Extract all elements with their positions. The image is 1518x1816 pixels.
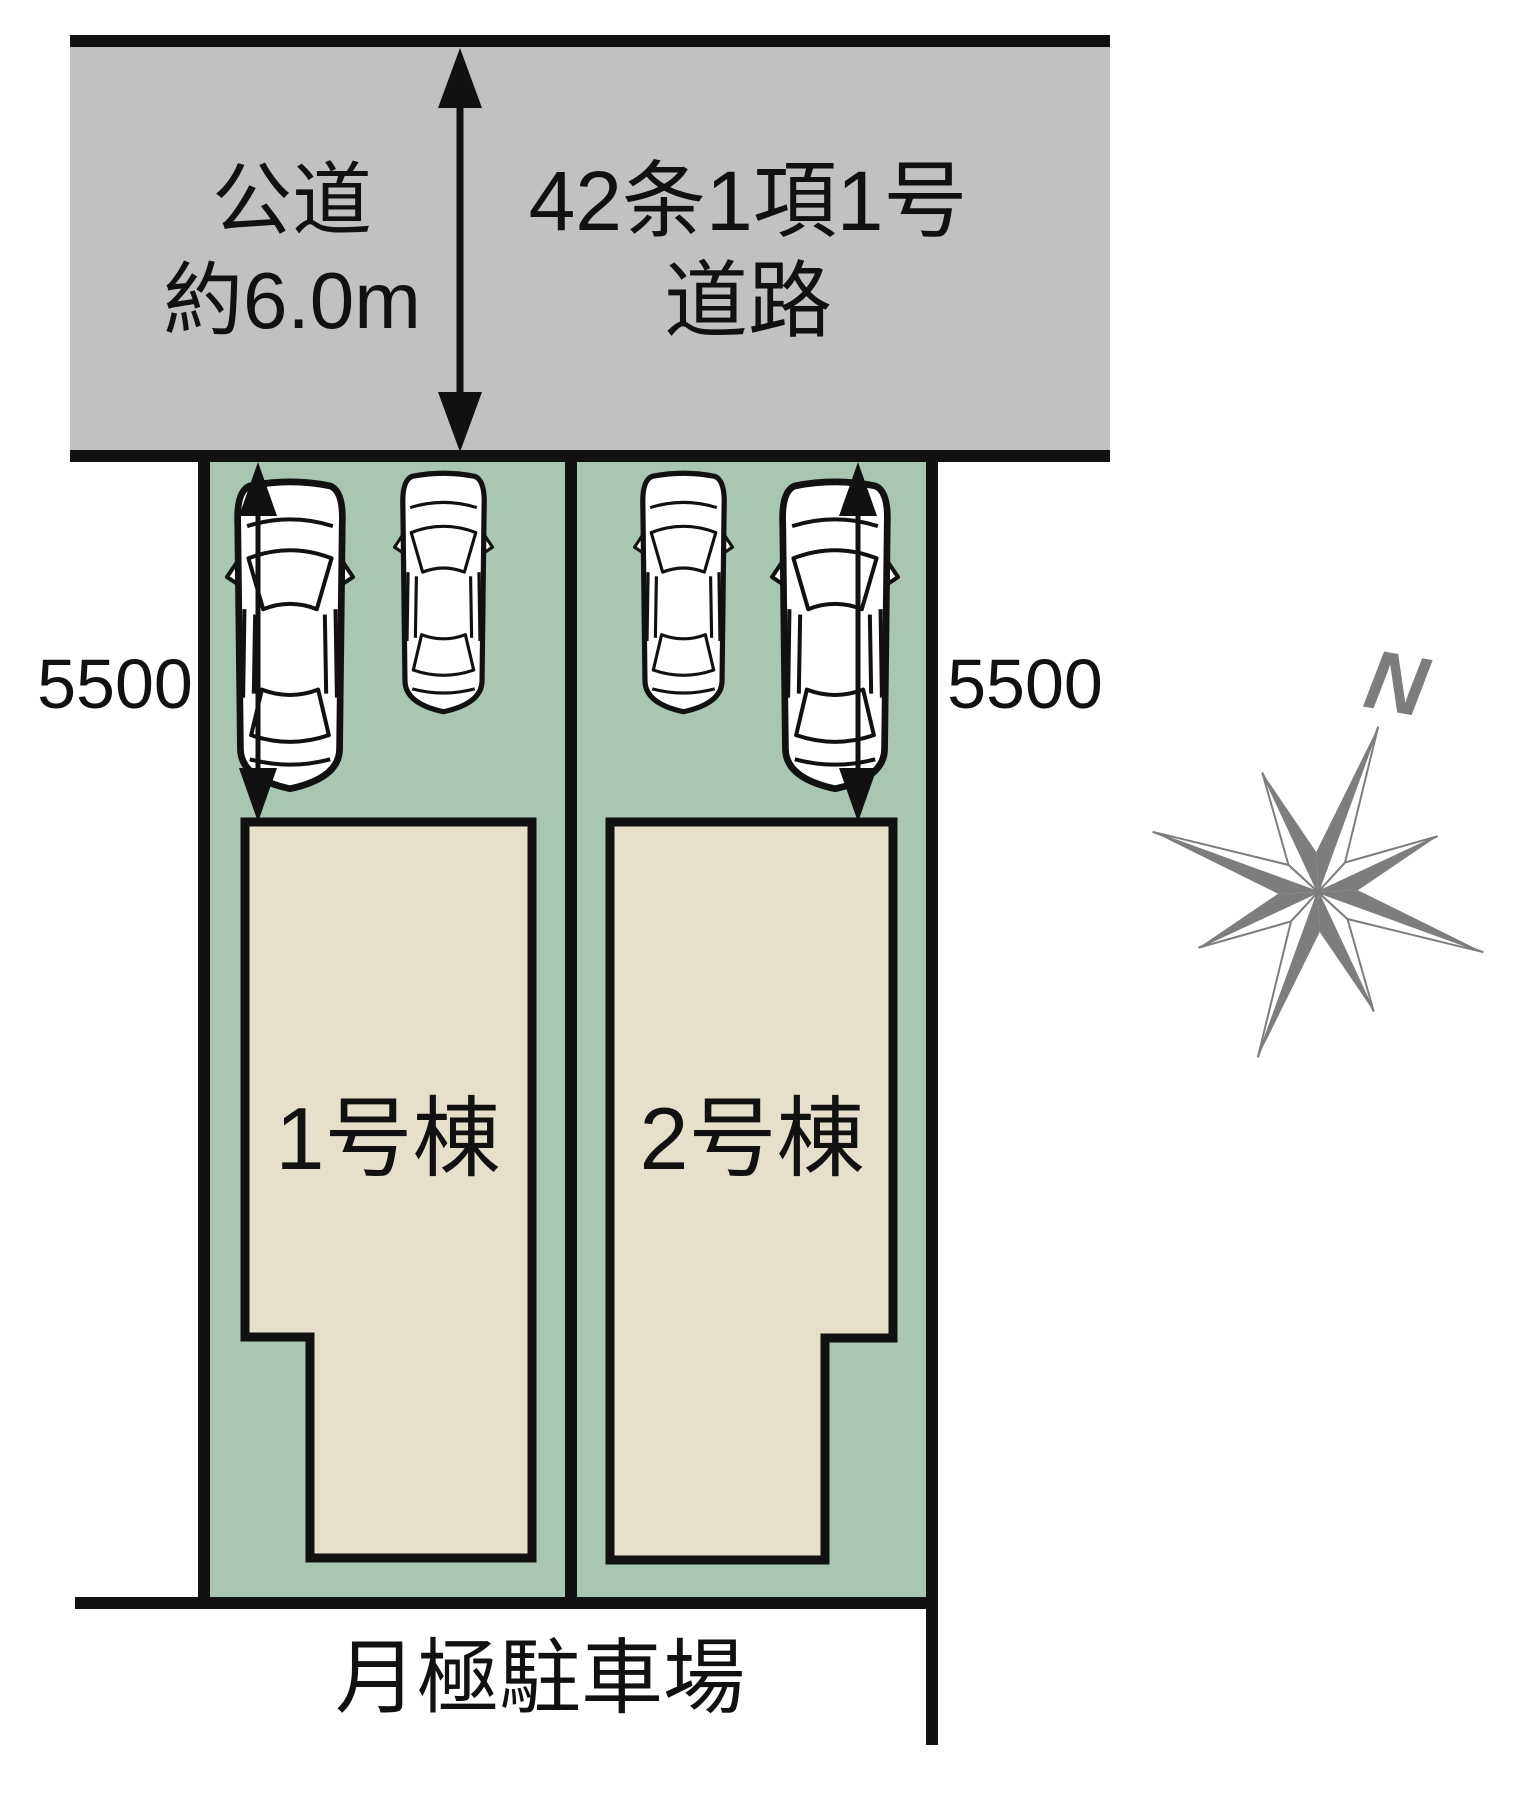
road-type-label-line1: 42条1項1号 <box>529 154 968 248</box>
plot-east-boundary-line <box>926 450 938 1745</box>
road-surface-label-line2: 約6.0m <box>163 256 421 345</box>
road-type-label-line2: 道路 <box>664 254 832 348</box>
depth-dimension-left: 5500 <box>37 645 193 723</box>
car-plot2-small <box>635 473 733 712</box>
depth-dimension-right: 5500 <box>947 645 1103 723</box>
plot-layout-diagram: 公道 約6.0m 42条1項1号 道路 5500 5500 1号棟 2号棟 月極… <box>0 0 1518 1816</box>
plot-west-boundary-line <box>198 450 210 1609</box>
car-plot1-large <box>227 482 353 789</box>
building-2-label: 2号棟 <box>640 1089 865 1188</box>
road-south-boundary-line <box>70 450 1110 462</box>
car-plot1-small <box>395 473 493 712</box>
building-1-label: 1号棟 <box>276 1089 501 1188</box>
road-north-boundary-line <box>70 35 1110 47</box>
site-plan-canvas: 公道 約6.0m 42条1項1号 道路 5500 5500 1号棟 2号棟 月極… <box>0 0 1518 1816</box>
plot-divider-line <box>565 456 577 1603</box>
compass-rose-icon <box>1092 666 1518 1117</box>
public-road-area <box>70 47 1110 450</box>
compass-cardinal-points <box>1092 666 1518 1117</box>
plot-south-boundary-line <box>75 1597 938 1609</box>
compass-north-label: N <box>1358 631 1436 735</box>
monthly-parking-label: 月極駐車場 <box>335 1633 745 1724</box>
car-plot2-large <box>772 482 898 789</box>
road-surface-label-line1: 公道 <box>212 156 372 245</box>
